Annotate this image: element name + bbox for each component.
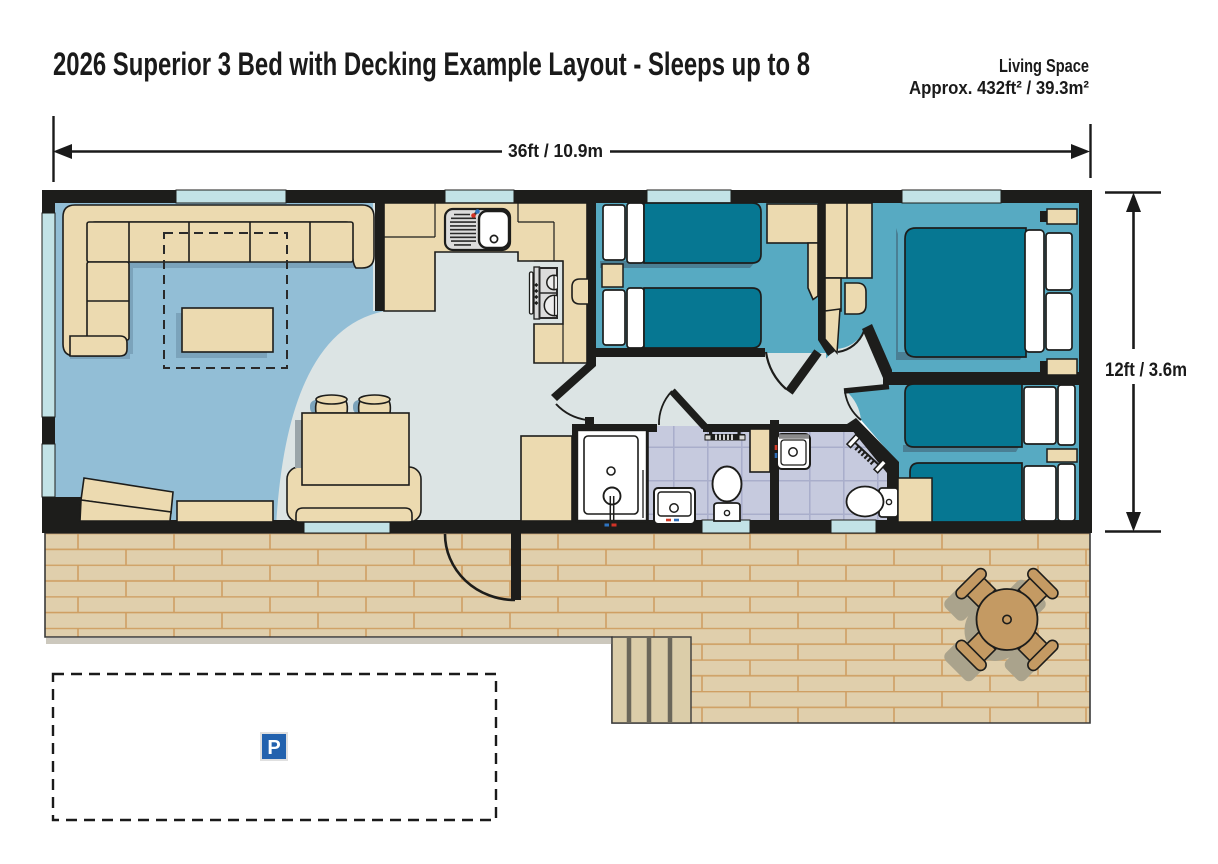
svg-text:12ft / 3.6m: 12ft / 3.6m bbox=[1105, 360, 1187, 381]
svg-text:Approx. 432ft² / 39.3m²: Approx. 432ft² / 39.3m² bbox=[909, 77, 1089, 98]
svg-text:36ft / 10.9m: 36ft / 10.9m bbox=[508, 140, 603, 161]
svg-text:Living Space: Living Space bbox=[999, 55, 1089, 76]
svg-text:2026 Superior 3 Bed with Decki: 2026 Superior 3 Bed with Decking Example… bbox=[53, 46, 810, 82]
svg-text:P: P bbox=[267, 737, 280, 759]
